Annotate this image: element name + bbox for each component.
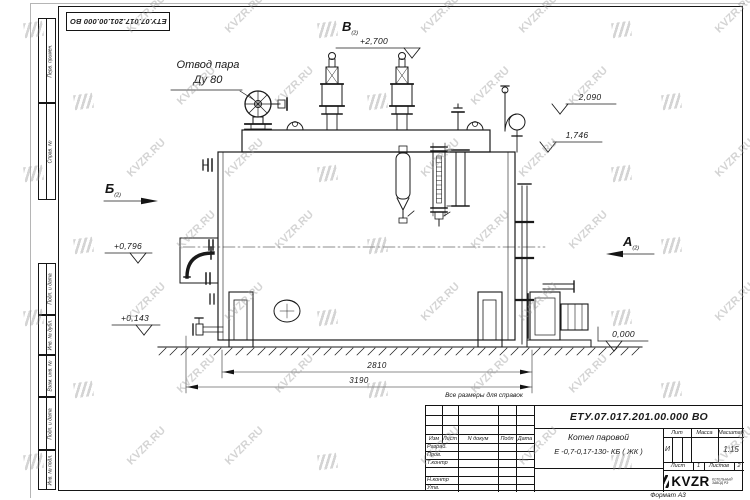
reference-note: Все размеры для справок bbox=[428, 392, 540, 399]
lit-value: И bbox=[663, 437, 672, 462]
generated-line bbox=[203, 348, 210, 355]
generated-line bbox=[412, 348, 419, 355]
steam-outlet-label-1: Отвод пара bbox=[170, 59, 246, 71]
sheet-label: Лист bbox=[663, 462, 693, 470]
sight-glass-gauge bbox=[431, 143, 450, 226]
manhole bbox=[274, 300, 300, 322]
frame-column-cell: Подп. и дата bbox=[38, 397, 56, 450]
generated-line bbox=[225, 348, 232, 355]
frame-column-cell: Инв. № подл. bbox=[38, 450, 56, 490]
generated-line bbox=[181, 348, 188, 355]
generated-line bbox=[555, 348, 562, 355]
generated-line bbox=[192, 348, 199, 355]
dimension-3190: 3190 bbox=[324, 376, 394, 385]
massa-label: Масса bbox=[691, 428, 718, 437]
elevation-0000: 0,000 bbox=[600, 329, 647, 339]
grid-line bbox=[534, 468, 663, 469]
frame-column-cell: Инв. № дубл. bbox=[38, 315, 56, 355]
sheets-value: 2 bbox=[734, 462, 744, 470]
siphon-loop bbox=[501, 86, 525, 152]
elevation-0143: +0,143 bbox=[109, 313, 161, 323]
row-blank bbox=[427, 467, 458, 476]
lifting-lugs bbox=[287, 122, 483, 131]
generated-line bbox=[159, 348, 166, 355]
fan-unit bbox=[527, 281, 591, 347]
row-razrab: Разраб. bbox=[427, 443, 458, 451]
col-data: Дата bbox=[516, 434, 534, 443]
col-list: Лист bbox=[442, 434, 458, 443]
generated-line bbox=[445, 348, 452, 355]
safety-valve-1 bbox=[320, 53, 344, 131]
col-izm: Изм bbox=[426, 434, 442, 443]
grid-line bbox=[458, 406, 459, 492]
generated-line bbox=[280, 348, 287, 355]
boiler-shell bbox=[218, 130, 515, 340]
generated-line bbox=[599, 348, 606, 355]
support-skids bbox=[229, 292, 502, 347]
water-column bbox=[396, 146, 414, 223]
generated-line bbox=[456, 348, 463, 355]
generated-line bbox=[467, 348, 474, 355]
generated-line bbox=[357, 348, 364, 355]
generated-line bbox=[368, 348, 375, 355]
frame-column-cell: Перв. примен. bbox=[38, 18, 56, 103]
generated-line bbox=[247, 348, 254, 355]
frame-column-cell: Взам. инв. № bbox=[38, 355, 56, 397]
elevation-2090: 2,090 bbox=[563, 92, 617, 102]
row-tkontr: Т.контр bbox=[427, 459, 458, 467]
row-prov: Пров. bbox=[427, 451, 458, 459]
doc-number: ЕТУ.07.017.201.00.000 ВО bbox=[534, 406, 744, 428]
generated-line bbox=[566, 348, 573, 355]
generated-line bbox=[214, 348, 221, 355]
generated-line bbox=[335, 348, 342, 355]
product-name-2: Е -0,7-0,17-130- КБ ( ЖК ) bbox=[534, 445, 663, 457]
elevation-2700: +2,700 bbox=[336, 36, 412, 46]
generated-line bbox=[632, 348, 639, 355]
logo-subtext: КОТЕЛЬНЫЙ ЗАВОД РЭ bbox=[712, 478, 732, 485]
generated-line bbox=[313, 348, 320, 355]
generated-line bbox=[511, 348, 518, 355]
generated-line bbox=[291, 348, 298, 355]
drum-tee-fitting bbox=[452, 104, 464, 130]
generated-line bbox=[621, 348, 628, 355]
generated-line bbox=[533, 348, 540, 355]
generated-line bbox=[302, 348, 309, 355]
view-arrows bbox=[104, 198, 654, 257]
steam-outlet-label-2: Ду 80 bbox=[170, 74, 246, 86]
view-label-a: А(2) bbox=[623, 234, 639, 252]
col-ndoc: N докум bbox=[458, 434, 498, 443]
masshtab-label: Масштаб bbox=[718, 428, 744, 437]
row-utv: Утв. bbox=[427, 484, 458, 492]
generated-line bbox=[544, 348, 551, 355]
safety-valve-2 bbox=[390, 53, 414, 131]
generated-line bbox=[258, 348, 265, 355]
generated-line bbox=[401, 348, 408, 355]
elevation-1746: 1,746 bbox=[550, 130, 604, 140]
top-stamp-box: ЕТУ.07.017.201.00.000 ВО bbox=[66, 12, 170, 31]
frame-column-cell: Справ. № bbox=[38, 103, 56, 200]
generated-line bbox=[610, 348, 617, 355]
generated-line bbox=[324, 348, 331, 355]
view-label-b: Б(2) bbox=[105, 181, 121, 199]
row-nkontr: Н.контр bbox=[427, 476, 458, 484]
grid-line bbox=[672, 437, 673, 462]
generated-line bbox=[489, 348, 496, 355]
grid-line bbox=[498, 406, 499, 492]
generated-line bbox=[577, 348, 584, 355]
product-name-1: Котел паровой bbox=[534, 430, 663, 444]
generated-line bbox=[170, 348, 177, 355]
generated-line bbox=[478, 348, 485, 355]
generated-line bbox=[423, 348, 430, 355]
grid-line bbox=[516, 406, 517, 492]
frame-column-cell: Подп. и дата bbox=[38, 263, 56, 315]
generated-line bbox=[390, 348, 397, 355]
dimension-2810: 2810 bbox=[342, 361, 412, 370]
generated-line bbox=[500, 348, 507, 355]
generated-line bbox=[379, 348, 386, 355]
generated-line bbox=[588, 348, 595, 355]
lit-label: Лит bbox=[663, 428, 691, 437]
sheet-value: 1 bbox=[693, 462, 704, 470]
level-indicator bbox=[447, 150, 469, 206]
sheets-label: Листов bbox=[704, 462, 734, 470]
generated-line bbox=[434, 348, 441, 355]
grid-line bbox=[682, 437, 683, 462]
drawing-sheet: Перв. примен.Справ. №Подп. и датаИнв. № … bbox=[0, 0, 750, 500]
company-logo: KVZR КОТЕЛЬНЫЙ ЗАВОД РЭ bbox=[663, 470, 744, 492]
col-podp: Подп bbox=[498, 434, 516, 443]
scale-value: 1:15 bbox=[718, 437, 744, 462]
title-block: ЕТУ.07.017.201.00.000 ВО Изм Лист N доку… bbox=[425, 405, 743, 491]
generated-line bbox=[346, 348, 353, 355]
top-stamp-number: ЕТУ.07.017.201.00.000 ВО bbox=[70, 17, 167, 26]
generated-line bbox=[236, 348, 243, 355]
logo-stripes-icon bbox=[663, 475, 669, 488]
logo-text: KVZR bbox=[671, 474, 709, 489]
steam-outlet-valve bbox=[171, 90, 287, 130]
grid-line bbox=[426, 425, 534, 426]
generated-line bbox=[522, 348, 529, 355]
grid-line bbox=[426, 415, 534, 416]
elevation-0796: +0,796 bbox=[102, 241, 154, 251]
format-label: Формат А3 bbox=[618, 492, 718, 499]
generated-line bbox=[269, 348, 276, 355]
view-label-v: В(2) bbox=[342, 19, 358, 37]
